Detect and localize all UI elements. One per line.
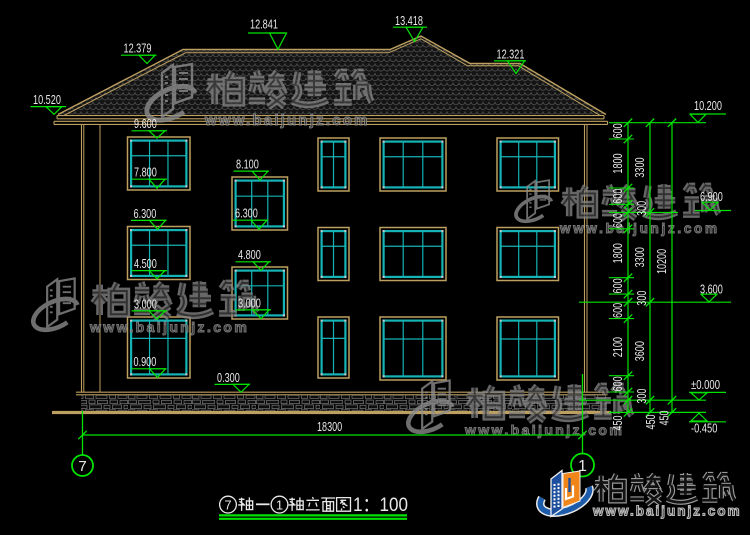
svg-text:3300: 3300: [633, 247, 647, 267]
svg-text:300: 300: [635, 389, 649, 404]
svg-text:600: 600: [611, 189, 625, 204]
svg-text:10.520: 10.520: [33, 93, 61, 107]
svg-text:1800: 1800: [611, 153, 625, 173]
svg-text:450: 450: [611, 415, 625, 430]
svg-text:12.321: 12.321: [497, 48, 525, 62]
svg-text:7: 7: [78, 458, 86, 475]
svg-text:300: 300: [635, 201, 649, 216]
svg-text:3300: 3300: [633, 157, 647, 177]
svg-text:-0.450: -0.450: [691, 422, 717, 436]
svg-text:3600: 3600: [633, 341, 647, 361]
svg-text:±0.000: ±0.000: [691, 378, 720, 392]
svg-text:4.800: 4.800: [238, 248, 261, 262]
svg-text:3.000: 3.000: [134, 297, 157, 311]
svg-text:1: 1: [276, 497, 283, 512]
svg-text:450: 450: [644, 414, 658, 429]
svg-text:0.900: 0.900: [134, 355, 157, 369]
svg-text:1：100: 1：100: [353, 495, 408, 516]
svg-text:600: 600: [611, 278, 625, 293]
svg-text:www.baijunjz.com: www.baijunjz.com: [89, 319, 249, 335]
svg-text:300: 300: [635, 291, 649, 306]
svg-text:600: 600: [611, 303, 625, 318]
svg-text:10.200: 10.200: [694, 99, 722, 113]
svg-text:600: 600: [611, 376, 625, 391]
svg-text:7.800: 7.800: [134, 166, 157, 180]
svg-text:600: 600: [611, 213, 625, 228]
svg-text:600: 600: [611, 123, 625, 138]
svg-text:www.baijunjz.com: www.baijunjz.com: [592, 504, 742, 519]
svg-text:4.500: 4.500: [134, 257, 157, 271]
svg-text:2100: 2100: [611, 337, 625, 357]
svg-text:6.300: 6.300: [134, 207, 157, 221]
svg-text:8.100: 8.100: [236, 158, 259, 172]
svg-text:3.000: 3.000: [238, 296, 261, 310]
svg-text:www.baijunjz.com: www.baijunjz.com: [559, 221, 720, 236]
svg-text:13.418: 13.418: [395, 14, 423, 28]
svg-text:12.379: 12.379: [124, 42, 152, 56]
svg-text:1800: 1800: [611, 243, 625, 263]
svg-text:9.600: 9.600: [134, 117, 157, 131]
svg-text:450: 450: [658, 410, 672, 425]
svg-text:12.841: 12.841: [250, 18, 278, 32]
svg-text:10200: 10200: [655, 249, 669, 274]
svg-text:7: 7: [224, 497, 231, 512]
svg-text:0.300: 0.300: [217, 371, 240, 385]
svg-text:18300: 18300: [317, 420, 342, 434]
svg-text:6.300: 6.300: [235, 207, 258, 221]
svg-text:www.baijunjz.com: www.baijunjz.com: [204, 112, 370, 129]
